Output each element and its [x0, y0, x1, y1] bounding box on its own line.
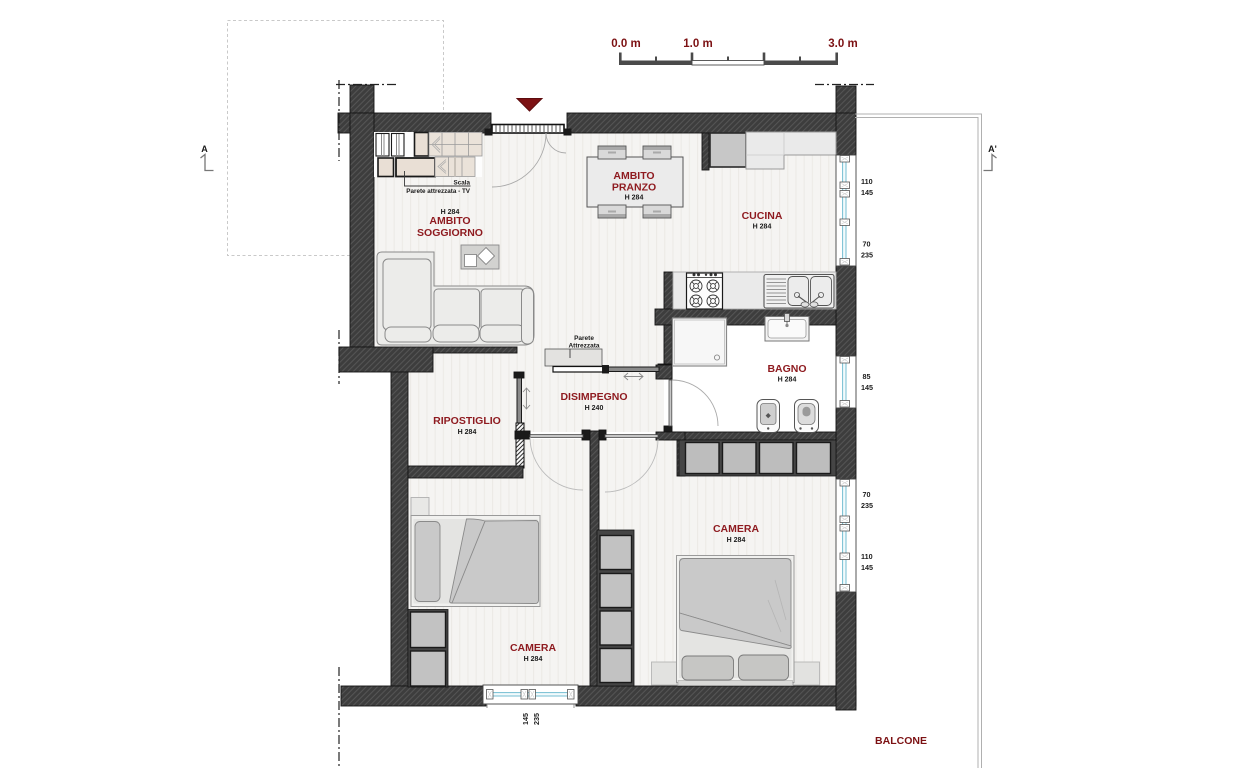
- svg-text:Parete: Parete: [574, 335, 594, 342]
- svg-text:CUCINA: CUCINA: [742, 210, 783, 222]
- svg-text:RIPOSTIGLIO: RIPOSTIGLIO: [433, 415, 501, 427]
- svg-text:DISIMPEGNO: DISIMPEGNO: [560, 391, 627, 403]
- svg-text:110: 110: [861, 552, 873, 561]
- svg-text:CAMERA: CAMERA: [713, 523, 759, 535]
- svg-text:0.0 m: 0.0 m: [611, 38, 640, 50]
- svg-text:H 240: H 240: [585, 405, 604, 412]
- svg-text:145: 145: [861, 383, 873, 392]
- svg-text:145: 145: [861, 563, 873, 572]
- svg-text:145: 145: [861, 188, 873, 197]
- svg-text:85: 85: [863, 372, 871, 381]
- svg-text:A: A: [201, 144, 208, 154]
- svg-text:Scala: Scala: [454, 180, 471, 187]
- svg-text:235: 235: [861, 251, 873, 260]
- svg-text:AMBITO: AMBITO: [429, 215, 470, 227]
- svg-text:CAMERA: CAMERA: [510, 642, 556, 654]
- svg-text:Parete attrezzata - TV: Parete attrezzata - TV: [406, 188, 470, 195]
- svg-text:H 284: H 284: [753, 224, 772, 231]
- svg-text:110: 110: [861, 177, 873, 186]
- svg-text:H 284: H 284: [625, 195, 644, 202]
- svg-text:H 284: H 284: [524, 656, 543, 663]
- svg-text:H 284: H 284: [458, 429, 477, 436]
- svg-text:BAGNO: BAGNO: [767, 363, 806, 375]
- svg-text:235: 235: [532, 713, 541, 725]
- svg-text:145: 145: [521, 713, 530, 725]
- svg-text:70: 70: [863, 490, 871, 499]
- svg-text:BALCONE: BALCONE: [875, 735, 927, 747]
- svg-text:AMBITO: AMBITO: [613, 170, 654, 182]
- svg-text:SOGGIORNO: SOGGIORNO: [417, 227, 483, 239]
- svg-text:PRANZO: PRANZO: [612, 182, 656, 194]
- svg-text:3.0 m: 3.0 m: [828, 38, 857, 50]
- svg-text:A': A': [988, 144, 997, 154]
- svg-text:H 284: H 284: [778, 377, 797, 384]
- svg-text:H 284: H 284: [727, 537, 746, 544]
- svg-text:Attrezzata: Attrezzata: [568, 343, 599, 350]
- svg-text:1.0 m: 1.0 m: [683, 38, 712, 50]
- svg-text:235: 235: [861, 501, 873, 510]
- svg-text:70: 70: [863, 240, 871, 249]
